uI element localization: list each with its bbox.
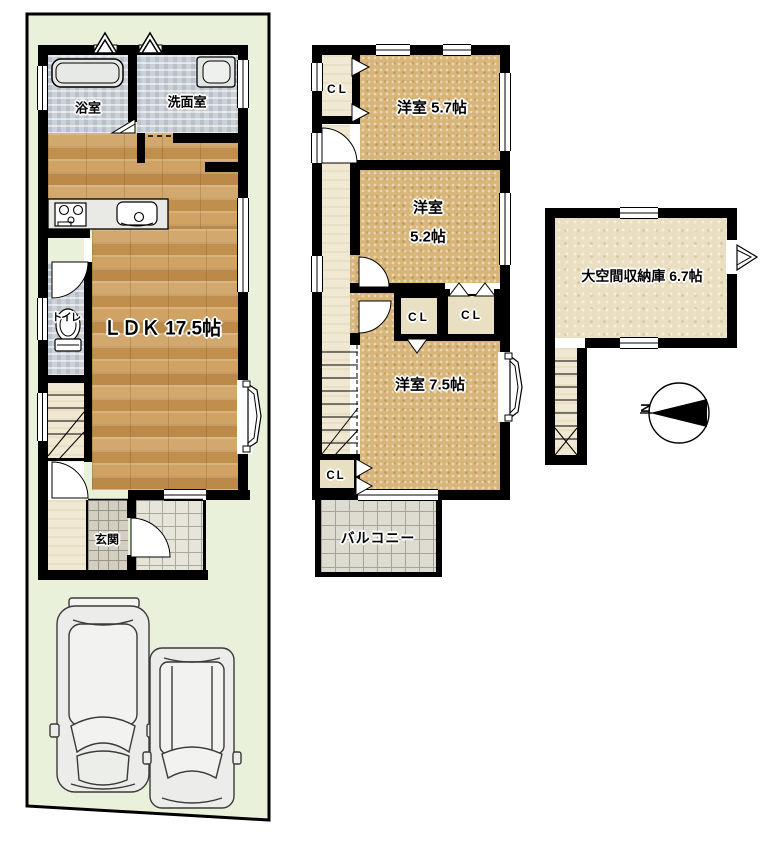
porch-tile <box>136 500 203 570</box>
ldk-label: ＬＤＫ 17.5帖 <box>103 314 221 341</box>
wall <box>84 382 92 462</box>
window <box>499 193 511 265</box>
wall-cl-top <box>352 55 360 123</box>
wall <box>38 570 208 580</box>
window <box>237 198 249 292</box>
window <box>376 44 410 56</box>
porch-edge <box>203 500 206 572</box>
room75-label: 洋室 7.5帖 <box>395 374 465 395</box>
wall <box>437 490 510 500</box>
entrance-hall-floor <box>48 500 86 570</box>
bath-label: 浴室 <box>75 98 101 117</box>
wall <box>46 229 90 238</box>
window <box>311 133 323 163</box>
wall <box>312 45 510 55</box>
closet-left-label: CL <box>408 310 430 324</box>
closet-top-label: CL <box>327 82 349 96</box>
wall <box>350 170 360 255</box>
window <box>37 66 48 110</box>
bathroom-floor <box>48 55 128 133</box>
window <box>620 207 658 219</box>
bay-window-gap <box>498 352 512 422</box>
doorway-gap <box>84 238 92 262</box>
wall <box>137 133 145 163</box>
entrance-label: 玄関 <box>95 531 119 548</box>
wall <box>318 116 360 124</box>
wall <box>577 348 587 465</box>
wall <box>205 162 248 172</box>
ldk-floor-main <box>92 229 238 490</box>
room57-label: 洋室 5.7帖 <box>397 97 467 118</box>
stairs1-floor <box>48 382 84 458</box>
window <box>499 73 511 151</box>
wall-bath-divider <box>128 45 137 122</box>
wall <box>127 555 136 575</box>
wall <box>350 160 510 170</box>
hall2-floor <box>322 125 350 490</box>
wall <box>127 500 136 518</box>
wall <box>585 338 737 348</box>
wall <box>727 208 737 348</box>
wall <box>545 208 555 465</box>
wall <box>173 133 248 143</box>
balcony-label: バルコニー <box>341 528 416 548</box>
closet-right-label: CL <box>461 308 483 322</box>
door-gap <box>726 240 738 274</box>
hall-door-area <box>48 462 84 500</box>
wall <box>84 262 92 378</box>
balcony-door <box>358 489 438 501</box>
window <box>443 44 471 56</box>
window <box>237 60 249 108</box>
bay-window-gap <box>237 380 252 454</box>
window <box>311 256 323 292</box>
closet-door-gap <box>450 285 494 294</box>
floor-plan-canvas: N 浴室 洗面室 トイレ ＬＤＫ 17.5帖 玄関 CL 洋室 5.7帖 洋室 … <box>0 0 761 846</box>
washroom-label: 洗面室 <box>167 92 206 111</box>
wall <box>38 45 248 55</box>
window <box>37 393 48 441</box>
door-strip-floor <box>350 255 360 335</box>
window <box>620 337 658 349</box>
room52-label-line1: 洋室 <box>413 197 443 218</box>
storage-label: 大空間収納庫 6.7帖 <box>581 266 702 286</box>
window <box>311 63 323 91</box>
window <box>164 489 206 501</box>
balcony-wall <box>315 497 321 577</box>
room52-label-line2: 5.2帖 <box>410 226 446 247</box>
wall <box>46 458 92 461</box>
wall <box>350 333 360 345</box>
balcony-wall <box>315 572 442 577</box>
toilet-label: トイレ <box>52 310 81 325</box>
wall <box>545 455 587 465</box>
balcony-wall <box>436 497 442 577</box>
window <box>37 298 48 340</box>
closet-bottom-label: CL <box>326 470 345 482</box>
wall <box>86 500 88 570</box>
stairs3-floor <box>555 348 577 455</box>
